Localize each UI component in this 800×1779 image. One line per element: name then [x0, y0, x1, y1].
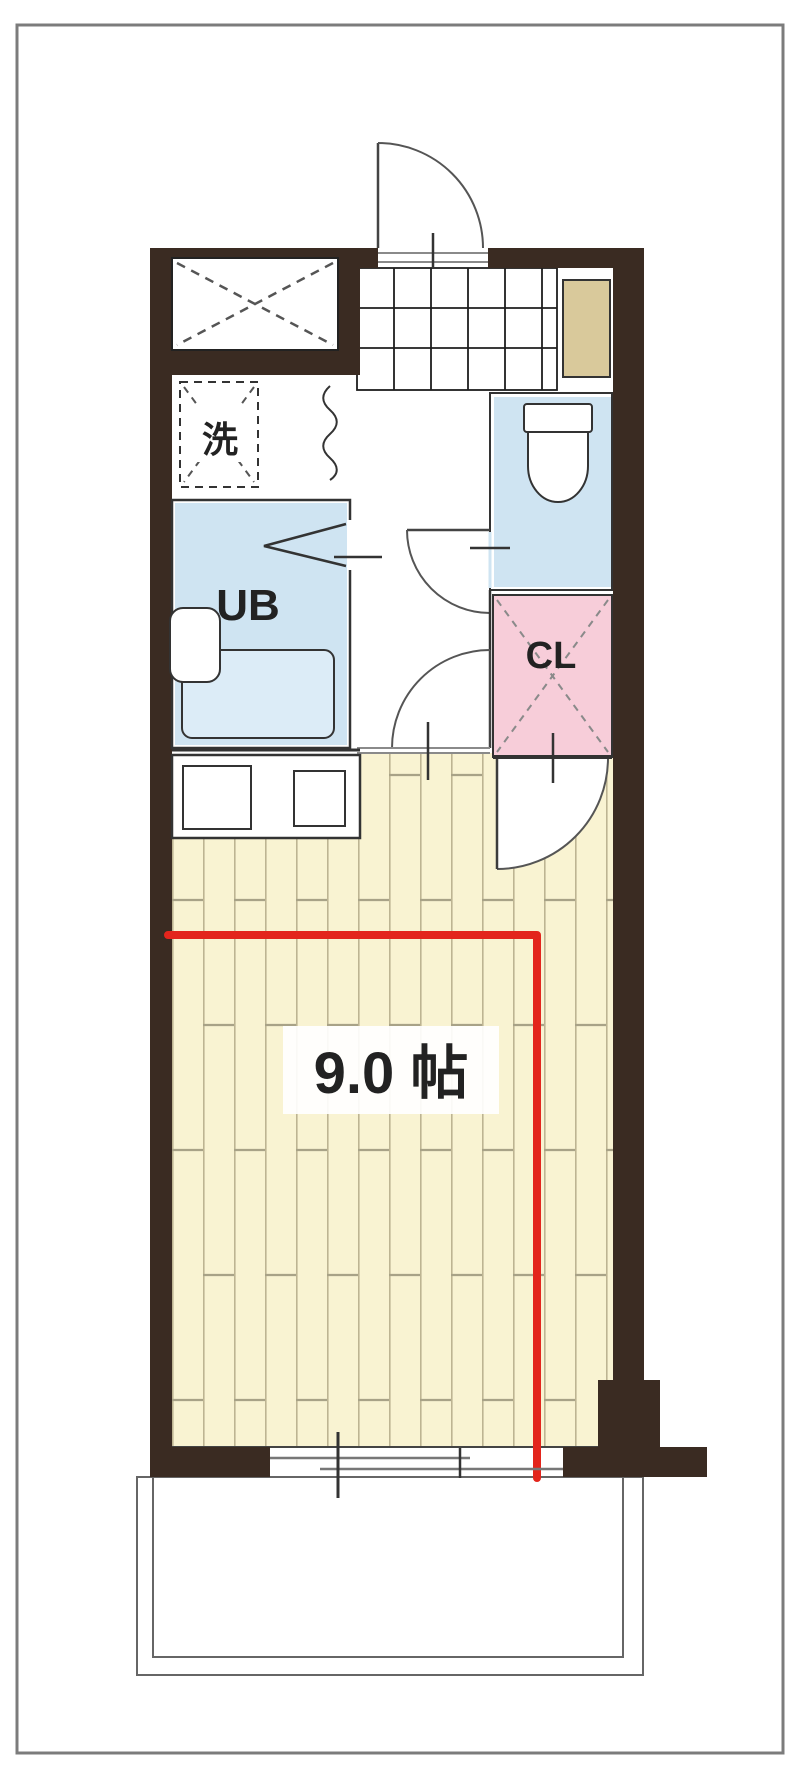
hall-threshold — [357, 748, 490, 753]
wall-left — [150, 248, 172, 1447]
toilet-room — [490, 393, 612, 590]
unit-bath-label: UB — [216, 581, 280, 630]
hall-door-arc-icon — [392, 650, 490, 748]
wall-bottom-right — [563, 1447, 707, 1477]
wall-right — [613, 248, 644, 1380]
shoe-cabinet — [563, 280, 610, 377]
wall-meter-box-right — [338, 248, 360, 375]
unit-bath: UB — [170, 500, 382, 748]
closet-label: CL — [526, 635, 577, 677]
main-room-size-label: 9.0 帖 — [314, 1041, 469, 1106]
kitchen-counter — [172, 750, 360, 838]
squiggle-symbol-icon — [323, 386, 337, 480]
floor-plan-drawing: 洗 CL UB — [0, 0, 800, 1779]
wall-pillar-bottom-right — [598, 1380, 660, 1447]
entrance-door-arc-icon — [378, 143, 483, 248]
wall-below-meter-box — [150, 350, 360, 375]
balcony — [137, 1477, 643, 1675]
wall-bottom-left — [150, 1447, 270, 1477]
kitchen-stove-icon — [294, 771, 345, 826]
floor-plan-page: 洗 CL UB — [0, 0, 800, 1779]
meter-box — [172, 258, 338, 350]
toilet-door-arc-icon — [407, 530, 490, 613]
washbasin-icon — [170, 608, 220, 682]
laundry-label: 洗 — [202, 419, 238, 460]
closet: CL — [493, 595, 612, 783]
genkan-tile-grid — [357, 268, 557, 390]
kitchen-sink-icon — [183, 766, 251, 829]
washing-machine-space: 洗 — [180, 382, 258, 487]
toilet-bowl-icon — [528, 432, 588, 502]
toilet-tank-icon — [524, 404, 592, 432]
